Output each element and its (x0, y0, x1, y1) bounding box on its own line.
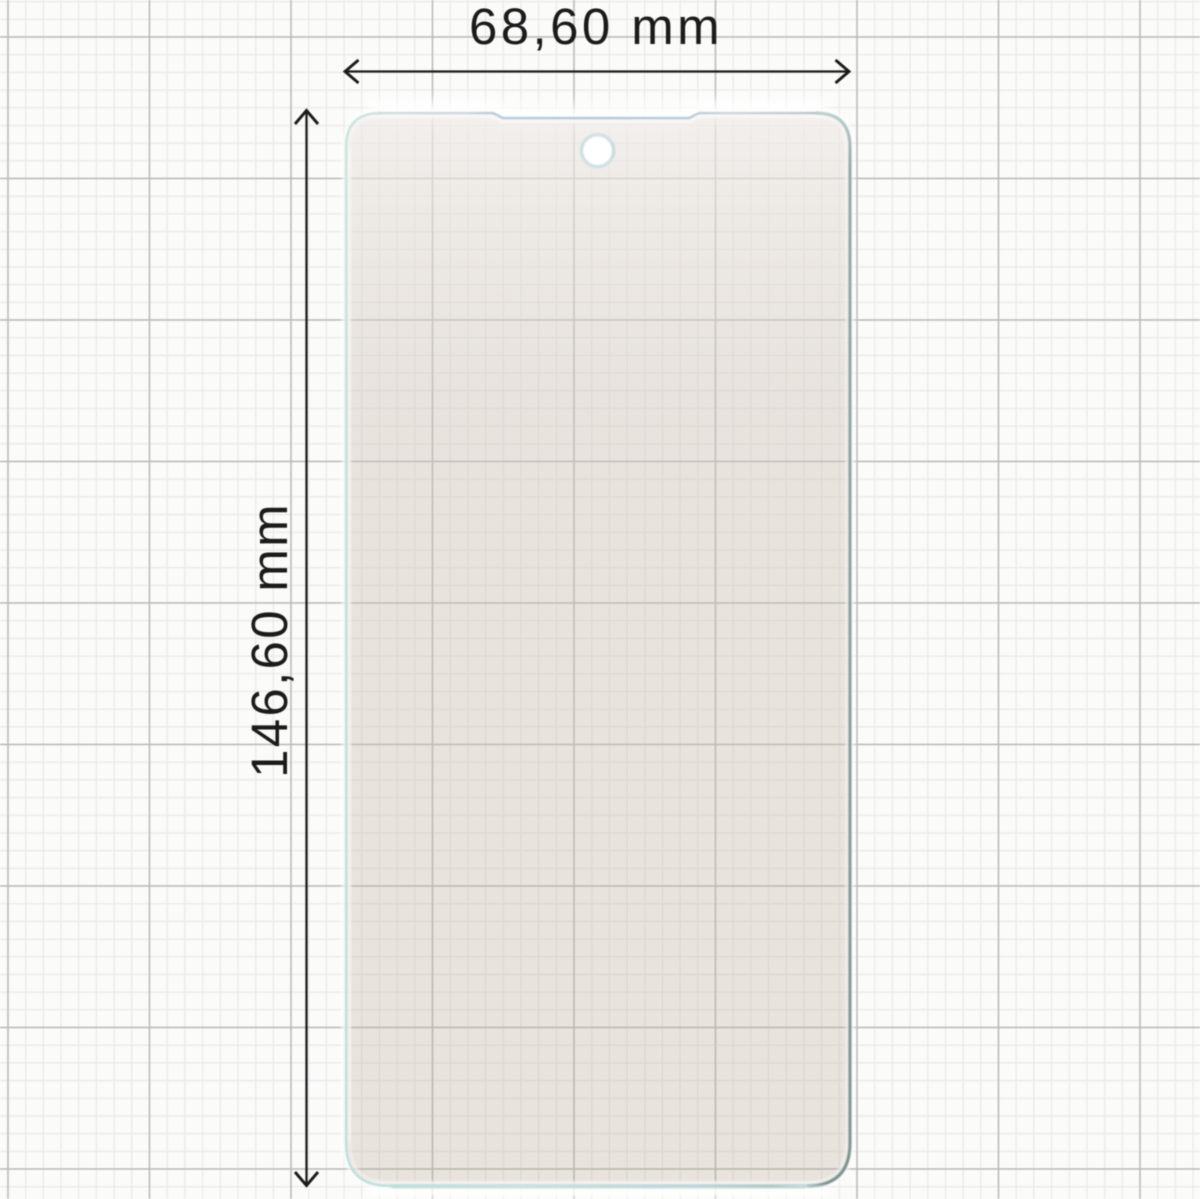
svg-text:68,60 mm: 68,60 mm (469, 0, 723, 55)
svg-text:146,60 mm: 146,60 mm (241, 502, 298, 778)
